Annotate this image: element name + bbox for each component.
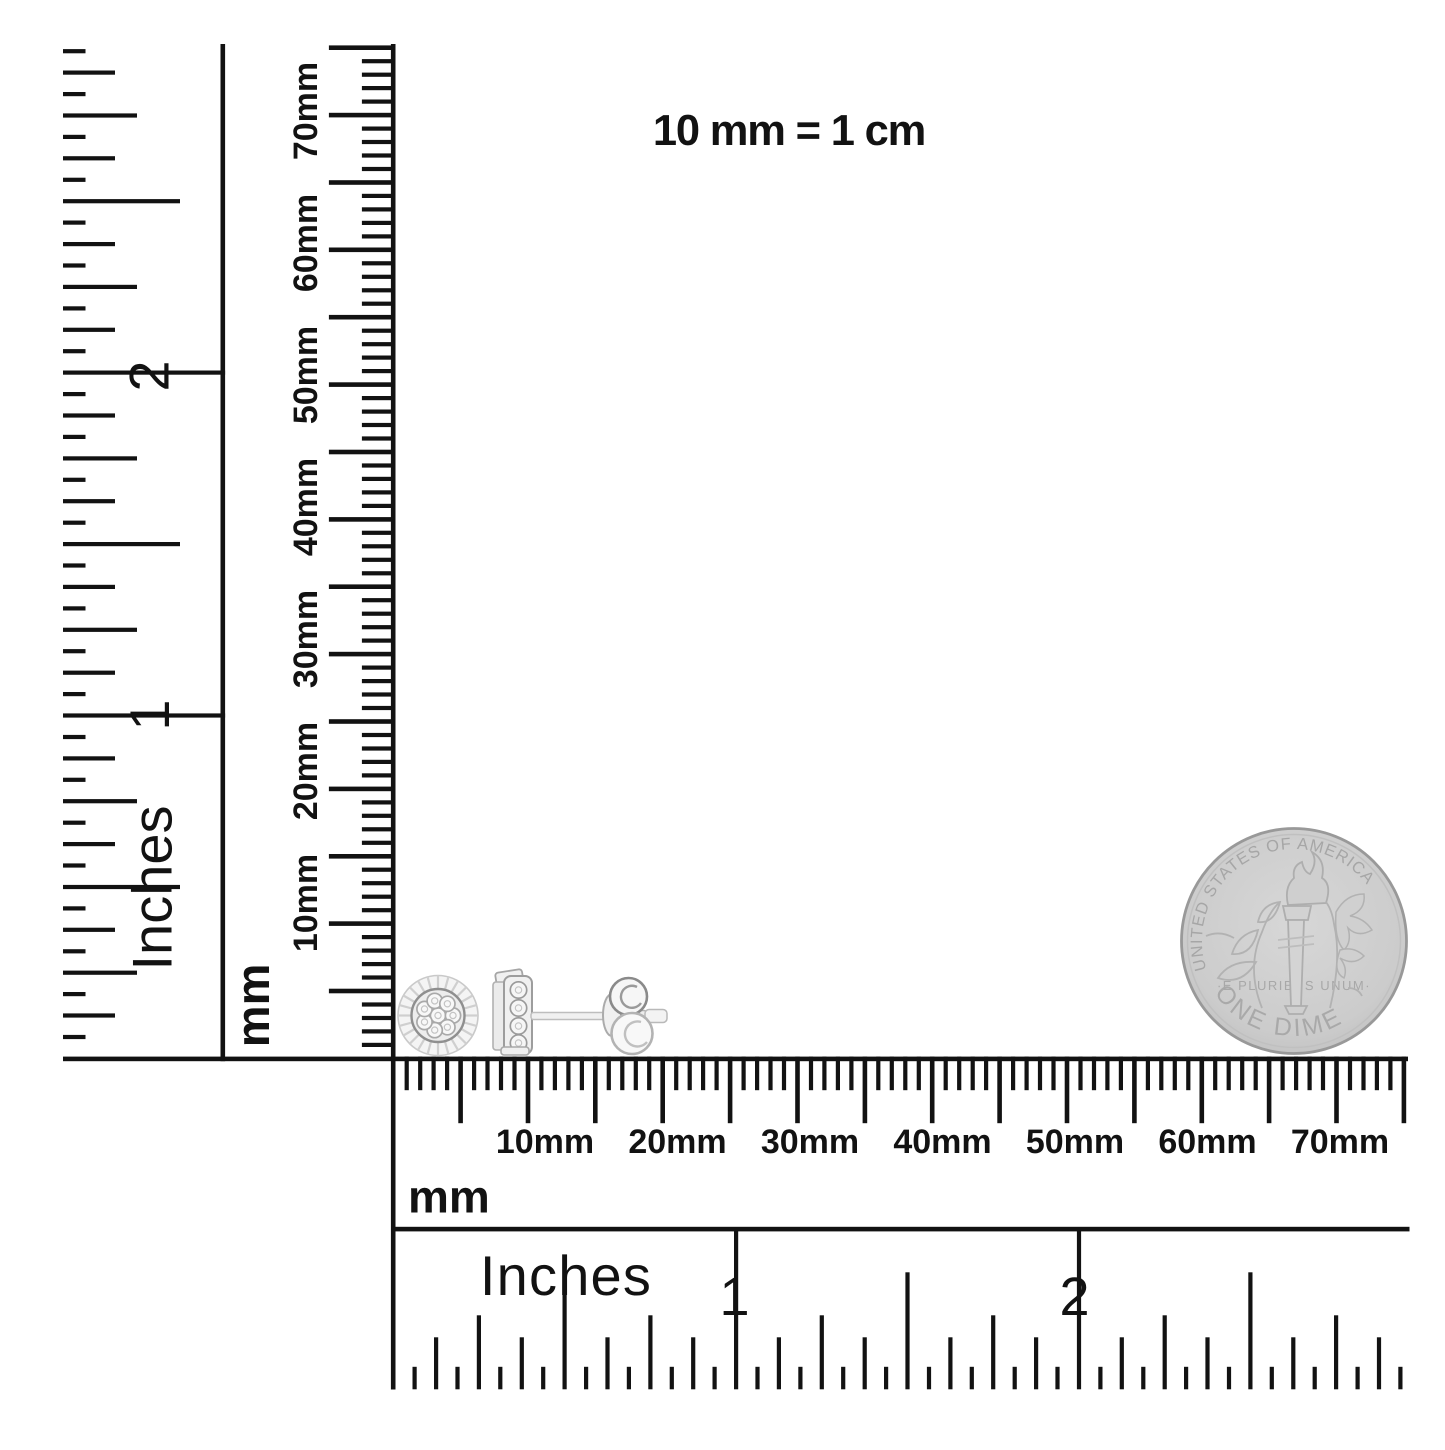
svg-text:1: 1 — [118, 699, 181, 730]
svg-text:50mm: 50mm — [287, 326, 325, 424]
svg-text:mm: mm — [408, 1171, 490, 1223]
svg-text:10 mm = 1 cm: 10 mm = 1 cm — [653, 107, 925, 155]
svg-text:50mm: 50mm — [1026, 1123, 1124, 1161]
svg-text:70mm: 70mm — [287, 62, 325, 160]
svg-text:2: 2 — [118, 360, 181, 391]
svg-text:10mm: 10mm — [496, 1123, 594, 1161]
svg-text:2: 2 — [1059, 1267, 1089, 1327]
svg-text:60mm: 60mm — [287, 194, 325, 292]
svg-text:60mm: 60mm — [1158, 1123, 1256, 1161]
svg-text:20mm: 20mm — [628, 1123, 726, 1161]
svg-text:30mm: 30mm — [287, 590, 325, 688]
svg-text:20mm: 20mm — [287, 722, 325, 820]
svg-text:Inches: Inches — [121, 806, 184, 971]
svg-text:Inches: Inches — [480, 1244, 652, 1307]
svg-text:40mm: 40mm — [287, 458, 325, 556]
svg-text:mm: mm — [226, 964, 279, 1048]
svg-text:30mm: 30mm — [761, 1123, 859, 1161]
svg-text:40mm: 40mm — [893, 1123, 991, 1161]
svg-text:1: 1 — [719, 1267, 749, 1327]
svg-text:10mm: 10mm — [287, 854, 325, 952]
svg-text:70mm: 70mm — [1291, 1123, 1389, 1161]
